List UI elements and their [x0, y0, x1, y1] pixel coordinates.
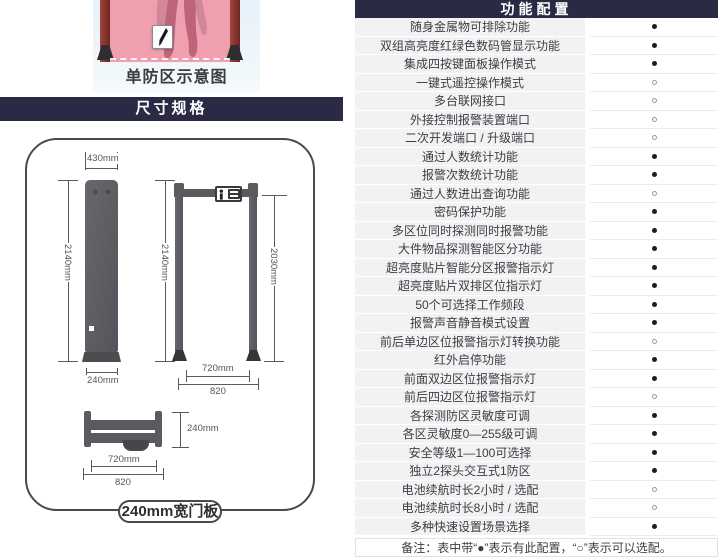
included-dot-icon — [652, 468, 657, 473]
included-dot-icon — [652, 357, 657, 362]
feature-label: 超亮度贴片双排区位指示灯 — [355, 277, 585, 296]
feature-value-cell — [590, 166, 718, 185]
door-panel-base — [82, 352, 121, 362]
knife-icon — [152, 25, 173, 49]
feature-label: 50个可选择工作频段 — [355, 296, 585, 315]
feature-label: 多种快速设置场景选择 — [355, 518, 585, 537]
feature-value-cell — [590, 333, 718, 352]
optional-dot-icon — [652, 117, 657, 122]
dim-tick — [163, 468, 164, 480]
feature-label: 各探测防区灵敏度可调 — [355, 407, 585, 426]
feature-value-cell — [590, 129, 718, 148]
included-dot-icon — [652, 450, 657, 455]
gate-right-cap — [248, 183, 258, 197]
dim-tick — [258, 378, 259, 390]
feature-value-cell — [590, 240, 718, 259]
table-row: 各探测防区灵敏度可调 — [355, 407, 718, 426]
feature-label: 多台联网接口 — [355, 92, 585, 111]
topview-left-cap — [84, 411, 91, 447]
dim-top-depth: 240mm — [186, 423, 220, 434]
table-row: 一键式遥控操作模式 — [355, 74, 718, 93]
table-row: 前面双边区位报警指示灯 — [355, 370, 718, 389]
feature-value-cell — [590, 462, 718, 481]
feature-label: 前后四边区位报警指示灯 — [355, 388, 585, 407]
table-title: 功能配置 — [355, 0, 718, 18]
floor-dashed-line — [110, 58, 230, 60]
table-row: 前后单边区位报警指示灯转换功能 — [355, 333, 718, 352]
optional-dot-icon — [652, 505, 657, 510]
included-dot-icon — [652, 24, 657, 29]
table-body: 随身金属物可排除功能双组高亮度红绿色数码管显示功能集成四按键面板操作模式一键式遥… — [355, 18, 718, 536]
table-row: 报警声音静音模式设置 — [355, 314, 718, 333]
gate-image — [100, 0, 240, 62]
feature-label: 各区灵敏度0—255级可调 — [355, 425, 585, 444]
included-dot-icon — [652, 413, 657, 418]
feature-label: 前后单边区位报警指示灯转换功能 — [355, 333, 585, 352]
included-dot-icon — [652, 61, 657, 66]
table-row: 超亮度贴片双排区位指示灯 — [355, 277, 718, 296]
feature-label: 报警声音静音模式设置 — [355, 314, 585, 333]
optional-dot-icon — [652, 98, 657, 103]
feature-value-cell — [590, 37, 718, 56]
feature-value-cell — [590, 351, 718, 370]
feature-label: 通过人数进出查询功能 — [355, 185, 585, 204]
feature-label: 报警次数统计功能 — [355, 166, 585, 185]
feature-value-cell — [590, 481, 718, 500]
feature-value-cell — [590, 388, 718, 407]
dim-front-outer-height: 2140mm — [159, 243, 170, 282]
feature-label: 安全等级1—100可选择 — [355, 444, 585, 463]
feature-value-cell — [590, 296, 718, 315]
included-dot-icon — [652, 154, 657, 159]
dim-side-bottom: 240mm — [86, 375, 120, 386]
table-row: 通过人数进出查询功能 — [355, 185, 718, 204]
table-row: 双组高亮度红绿色数码管显示功能 — [355, 37, 718, 56]
included-dot-icon — [652, 431, 657, 436]
feature-value-cell — [590, 370, 718, 389]
included-dot-icon — [652, 320, 657, 325]
topview-control-box — [123, 440, 149, 451]
table-row: 报警次数统计功能 — [355, 166, 718, 185]
dim-side-top: 430mm — [86, 153, 120, 164]
table-row: 通过人数统计功能 — [355, 148, 718, 167]
optional-dot-icon — [652, 394, 657, 399]
dim-top-outer-width: 820 — [114, 477, 132, 488]
dim-line — [178, 384, 258, 385]
included-dot-icon — [652, 172, 657, 177]
feature-value-cell — [590, 314, 718, 333]
person-count-icon — [217, 188, 226, 201]
table-row: 多台联网接口 — [355, 92, 718, 111]
dim-tick — [156, 460, 157, 472]
optional-dot-icon — [652, 487, 657, 492]
feature-value-cell — [590, 185, 718, 204]
size-spec-banner: 尺寸规格 — [0, 97, 343, 121]
table-row: 密码保护功能 — [355, 203, 718, 222]
included-dot-icon — [652, 228, 657, 233]
table-row: 各区灵敏度0—255级可调 — [355, 425, 718, 444]
feature-label: 独立2探头交互式1防区 — [355, 462, 585, 481]
feature-value-cell — [590, 425, 718, 444]
feature-value-cell — [590, 499, 718, 518]
dim-line — [172, 447, 189, 448]
feature-label: 二次开发端口 / 升级端口 — [355, 129, 585, 148]
table-row: 独立2探头交互式1防区 — [355, 462, 718, 481]
dim-side-height: 2140mm — [62, 243, 73, 282]
dim-front-inner-height: 2030mm — [268, 247, 279, 286]
feature-value-cell — [590, 277, 718, 296]
dim-line — [186, 376, 249, 377]
table-row: 二次开发端口 / 升级端口 — [355, 129, 718, 148]
table-row: 随身金属物可排除功能 — [355, 18, 718, 37]
dim-line — [83, 474, 163, 475]
feature-label: 双组高亮度红绿色数码管显示功能 — [355, 37, 585, 56]
optional-dot-icon — [652, 191, 657, 196]
topview-right-cap — [155, 411, 162, 447]
feature-label: 通过人数统计功能 — [355, 148, 585, 167]
feature-value-cell — [590, 222, 718, 241]
table-row: 多区位同时探测同时报警功能 — [355, 222, 718, 241]
included-dot-icon — [652, 524, 657, 529]
feature-label: 电池续航时长2小时 / 选配 — [355, 481, 585, 500]
table-row: 50个可选择工作频段 — [355, 296, 718, 315]
table-row: 电池续航时长2小时 / 选配 — [355, 481, 718, 500]
gate-left-post-front — [175, 196, 183, 354]
included-dot-icon — [652, 246, 657, 251]
table-row: 红外启停功能 — [355, 351, 718, 370]
feature-label: 随身金属物可排除功能 — [355, 18, 585, 37]
panel-width-label: 240mm宽门板 — [118, 500, 222, 523]
door-panel-side-view — [85, 180, 118, 352]
dim-line — [264, 361, 284, 362]
gate-right-post-front — [249, 196, 257, 354]
feature-label: 外接控制报警装置端口 — [355, 111, 585, 130]
feature-value-cell — [590, 407, 718, 426]
table-row: 超亮度贴片智能分区报警指示灯 — [355, 259, 718, 278]
feature-value-cell — [590, 259, 718, 278]
feature-label: 一键式遥控操作模式 — [355, 74, 585, 93]
table-row: 安全等级1—100可选择 — [355, 444, 718, 463]
page: 单防区示意图 尺寸规格 430mm 2140mm 240mm 2140mm 2 — [0, 0, 720, 559]
table-row: 大件物品探测智能区分功能 — [355, 240, 718, 259]
dim-top-inner-width: 720mm — [107, 454, 141, 465]
table-row: 多种快速设置场景选择 — [355, 518, 718, 537]
table-row: 电池续航时长8小时 / 选配 — [355, 499, 718, 518]
feature-label: 超亮度贴片智能分区报警指示灯 — [355, 259, 585, 278]
dim-line — [85, 168, 118, 169]
dim-line — [58, 361, 78, 362]
dim-line — [91, 466, 156, 467]
feature-value-cell — [590, 148, 718, 167]
feature-value-cell — [590, 92, 718, 111]
optional-dot-icon — [652, 135, 657, 140]
optional-dot-icon — [652, 80, 657, 85]
feature-value-cell — [590, 518, 718, 537]
feature-label: 大件物品探测智能区分功能 — [355, 240, 585, 259]
included-dot-icon — [652, 209, 657, 214]
table-note: 备注：表中带“●”表示有此配置，“○”表示可以选配。 — [355, 538, 718, 557]
digit-display-icon — [228, 189, 240, 199]
panel-screw-icon — [106, 190, 110, 194]
panel-logo-mark — [89, 326, 94, 331]
feature-value-cell — [590, 111, 718, 130]
feature-config-table: 功能配置 随身金属物可排除功能双组高亮度红绿色数码管显示功能集成四按键面板操作模… — [355, 0, 718, 557]
included-dot-icon — [652, 302, 657, 307]
feature-label: 红外启停功能 — [355, 351, 585, 370]
feature-label: 多区位同时探测同时报警功能 — [355, 222, 585, 241]
included-dot-icon — [652, 376, 657, 381]
table-row: 外接控制报警装置端口 — [355, 111, 718, 130]
dim-front-inner-width: 720mm — [201, 363, 235, 374]
included-dot-icon — [652, 283, 657, 288]
dim-line — [180, 412, 181, 447]
dim-line — [155, 361, 175, 362]
feature-value-cell — [590, 18, 718, 37]
topview-panel-1 — [91, 420, 155, 430]
feature-value-cell — [590, 444, 718, 463]
table-row: 前后四边区位报警指示灯 — [355, 388, 718, 407]
dim-tick — [249, 370, 250, 382]
feature-label: 集成四按键面板操作模式 — [355, 55, 585, 74]
included-dot-icon — [652, 43, 657, 48]
photo-caption: 单防区示意图 — [93, 62, 260, 93]
feature-value-cell — [590, 203, 718, 222]
feature-label: 电池续航时长8小时 / 选配 — [355, 499, 585, 518]
feature-value-cell — [590, 74, 718, 93]
dim-line — [86, 372, 118, 373]
panel-screw-icon — [93, 190, 97, 194]
feature-value-cell — [590, 55, 718, 74]
feature-label: 密码保护功能 — [355, 203, 585, 222]
dim-front-outer-width: 820 — [209, 386, 227, 397]
optional-dot-icon — [652, 339, 657, 344]
control-display — [215, 186, 242, 202]
table-row: 集成四按键面板操作模式 — [355, 55, 718, 74]
feature-label: 前面双边区位报警指示灯 — [355, 370, 585, 389]
included-dot-icon — [652, 265, 657, 270]
